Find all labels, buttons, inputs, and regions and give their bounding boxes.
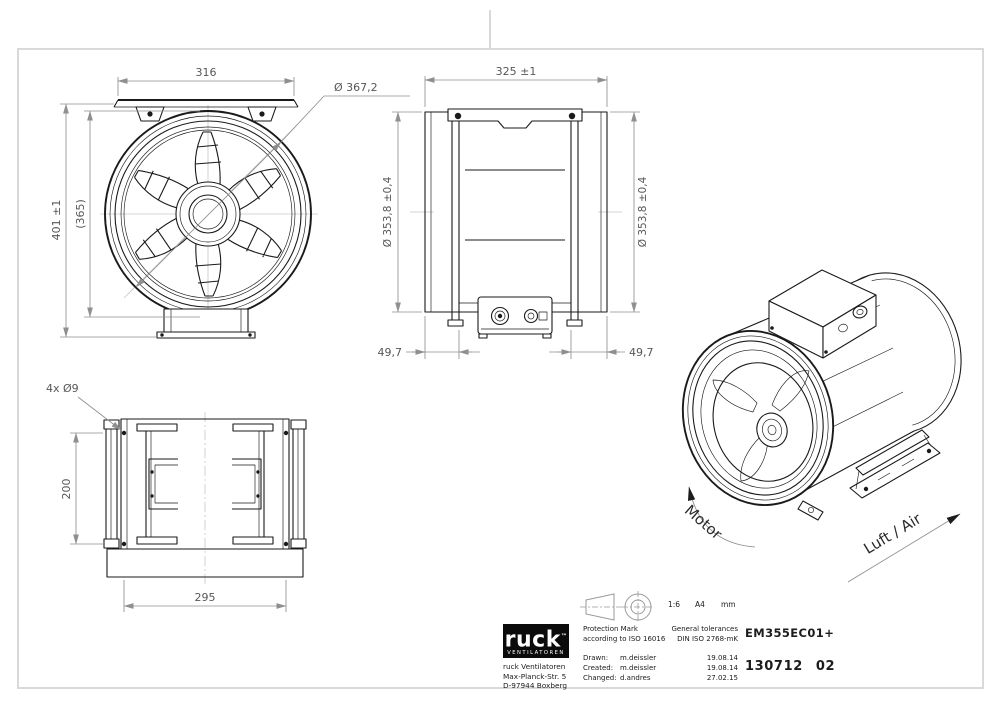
dim-bottom-pitch-horizontal: 295 [195,591,216,604]
dimension-pitch-200: 200 [60,433,103,544]
drawing-number: 13071202 [745,659,835,674]
dimension-width-316: 316 [118,66,294,96]
units-value: mm [721,600,736,609]
row-date: 19.08.14 [707,663,738,673]
part-number: EM355EC01+ [745,626,834,640]
logo-text: ruck™ [503,626,569,650]
dim-side-diameter-right: Ø 353,8 ±0,4 [637,176,649,247]
isometric-view: Motor Luft / Air [663,256,980,582]
front-view: 316 Ø 367,2 401 ±1 (365) [50,66,410,338]
bottom-view: 4x Ø9 200 295 [46,382,306,612]
company-logo: ruck™ VENTILATOREN [503,624,569,658]
row-label: Created: [583,663,620,673]
dimension-overall-height: 401 ±1 [50,104,157,337]
bottom-foot-bracket [157,309,255,338]
tolerance-note-line: General tolerances [650,625,738,635]
tolerance-note: General tolerances DIN ISO 2768-mK [650,625,738,644]
terminal-box [459,297,571,338]
dimension-offset-left: 49,7 [378,316,481,359]
revision-value: 02 [816,659,835,674]
title-block: ruck™ VENTILATOREN ruck Ventilatoren Max… [500,588,986,688]
revision-table: Drawn: m.deissler 19.08.14 Created: m.de… [583,653,738,683]
company-address-line: Max-Planck-Str. 5 [503,672,567,682]
dimension-pitch-295: 295 [124,580,286,612]
dimension-length-325: 325 ±1 [425,65,607,107]
table-row: Changed: d.andres 27.02.15 [583,673,738,683]
dim-bottom-holes: 4x Ø9 [46,382,79,395]
table-row: Created: m.deissler 19.08.14 [583,663,738,673]
company-address-line: ruck Ventilatoren [503,662,567,672]
tolerance-note-line: DIN ISO 2768-mK [650,635,738,645]
logo-trademark: ™ [561,633,568,640]
logo-subtext: VENTILATOREN [503,650,569,657]
dim-front-height: 401 ±1 [50,200,63,241]
drawing-number-value: 130712 [745,659,803,674]
row-name: d.andres [620,673,707,683]
dimension-offset-right: 49,7 [549,316,654,359]
clamp-bands [448,109,582,326]
dim-side-offset-left: 49,7 [378,346,403,359]
dim-front-ref-height: (365) [74,199,87,229]
dim-side-diameter-left: Ø 353,8 ±0,4 [382,176,394,247]
rim-clamp-tab [798,501,823,520]
side-view: 325 ±1 Ø 353,8 ±0,4 Ø 353,8 ±0,4 [378,65,654,359]
row-name: m.deissler [620,653,707,663]
dim-bottom-pitch-vertical: 200 [60,479,73,500]
drawing-sheet: 316 Ø 367,2 401 ±1 (365) [0,0,1000,707]
motor-label: Motor [681,501,726,544]
row-date: 27.02.15 [707,673,738,683]
company-address-line: D-97944 Boxberg [503,681,567,691]
dim-front-width: 316 [196,66,217,79]
impeller-hub [176,182,240,246]
company-address: ruck Ventilatoren Max-Planck-Str. 5 D-97… [503,662,567,691]
dim-side-offset-right: 49,7 [629,346,654,359]
row-date: 19.08.14 [707,653,738,663]
first-angle-projection-icon [576,589,676,625]
row-label: Drawn: [583,653,620,663]
row-name: m.deissler [620,663,707,673]
dim-front-diameter: Ø 367,2 [334,81,378,94]
table-row: Drawn: m.deissler 19.08.14 [583,653,738,663]
format-value: A4 [695,600,705,609]
dim-side-length: 325 ±1 [496,65,537,78]
row-label: Changed: [583,673,620,683]
logo-word: ruck [505,627,561,652]
scale-value: 1:6 [668,600,680,609]
airflow-label: Luft / Air [860,509,925,558]
